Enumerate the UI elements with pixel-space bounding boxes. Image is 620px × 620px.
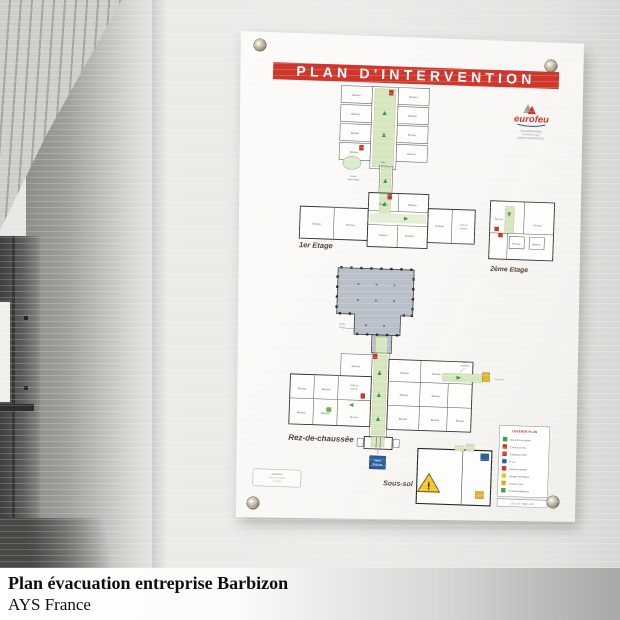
room-label: Bureau xyxy=(298,386,307,390)
column-dot xyxy=(393,300,395,302)
evacuation-corridor xyxy=(455,446,464,451)
access-stage-label: Accès xyxy=(339,323,346,326)
room-label: Bureau xyxy=(405,234,414,238)
photo-scene: PLAN D'INTERVENTION eurofeu Rue Albert R… xyxy=(0,0,620,620)
meeting-room-label: Salle de xyxy=(460,225,469,227)
legend-symbol-icon xyxy=(501,488,506,493)
break-room-label: Salle xyxy=(380,162,386,164)
column-dot xyxy=(376,284,378,286)
evacuation-corridor xyxy=(371,437,384,447)
structure-dot xyxy=(396,334,398,336)
evacuation-panel: PLAN D'INTERVENTION eurofeu Rue Albert R… xyxy=(236,30,584,522)
room-label: Bureau xyxy=(351,112,360,116)
legend-symbol-icon xyxy=(501,481,506,486)
extinguisher-icon xyxy=(373,354,377,359)
structure-dot xyxy=(412,278,414,280)
extinguisher-icon xyxy=(389,90,393,95)
extinguisher-icon xyxy=(388,194,392,199)
basement-label: Sous-sol xyxy=(383,480,414,488)
structure-dot xyxy=(339,312,341,314)
room-label: Bureau xyxy=(407,152,416,156)
door-bar xyxy=(0,404,34,411)
warning-exclamation: ! xyxy=(427,481,431,493)
you-are-here-text: VOUS xyxy=(374,460,381,462)
evacuation-corridor xyxy=(372,89,396,168)
workshop-roof-block: Accès Etage xyxy=(335,267,414,354)
legend-label: Extincteur eau xyxy=(510,446,527,450)
room-label: Bureau xyxy=(532,242,541,246)
column-dot xyxy=(358,283,360,285)
structure-dot xyxy=(336,295,338,297)
structure-dot xyxy=(390,268,392,270)
room-label: Bureau xyxy=(350,150,359,154)
logo-brand: eurofeu xyxy=(514,114,549,126)
column-dot xyxy=(383,325,385,327)
legend-symbol-icon xyxy=(502,466,507,471)
room-label: Bureau xyxy=(534,223,543,227)
room-label: Bureau xyxy=(409,95,418,99)
extinguisher-icon xyxy=(359,145,363,150)
door-window xyxy=(0,300,12,404)
legend-symbol-icon xyxy=(503,444,508,449)
mounting-screw xyxy=(247,497,260,510)
evacuation-corridor xyxy=(375,337,388,353)
floorplan-first-floor: Salle de réunion 1er Etage xyxy=(299,190,476,255)
ria-icon xyxy=(495,227,499,231)
structure-dot xyxy=(335,305,337,307)
extinguisher-icon xyxy=(498,233,502,237)
legend-label: Alarme incendie xyxy=(509,468,528,472)
extinguisher-icon xyxy=(361,393,365,398)
corner-shadow xyxy=(152,0,168,568)
meter-label: Compteur xyxy=(494,378,504,381)
legend-label: Extincteur CO2 xyxy=(510,453,528,457)
structure-dot xyxy=(411,315,413,317)
structure-dot xyxy=(349,312,351,314)
door-hinge xyxy=(24,386,28,390)
you-are-here-text: ÊTES ICI xyxy=(373,463,383,466)
wall-photo: PLAN D'INTERVENTION eurofeu Rue Albert R… xyxy=(0,0,620,568)
caption-subtitle: AYS France xyxy=(8,594,620,615)
structure-dot xyxy=(336,285,338,287)
room-label: Bureau xyxy=(322,387,331,391)
structure-dot xyxy=(403,314,405,316)
room-label: Bureau xyxy=(512,242,521,246)
second-floor-label: 2ème Etage xyxy=(489,266,528,274)
floorplan-second-floor: 2ème Etage xyxy=(488,201,554,275)
room-label: Bureau xyxy=(432,394,441,398)
legend-symbol-icon xyxy=(502,473,507,478)
legend-symbol-icon xyxy=(502,459,507,464)
room-label: Bureau xyxy=(432,372,441,376)
room-label: Bureau xyxy=(456,419,465,423)
meter-icon xyxy=(482,373,489,382)
break-room-label: de pause xyxy=(378,165,388,167)
structure-dot xyxy=(336,275,338,277)
structure-dot xyxy=(400,268,402,270)
access-stage-label: Etage xyxy=(339,326,346,329)
evacuation-corridor xyxy=(442,373,482,382)
structure-dot xyxy=(370,267,372,269)
room-label: Bureau xyxy=(379,233,388,237)
structure-dot xyxy=(376,333,378,335)
ground-floor-label: Rez-de-chaussée xyxy=(288,433,354,444)
mounting-screw xyxy=(254,39,267,52)
evacuation-corridor xyxy=(505,206,515,232)
you-are-here-sign: VOUS ÊTES ICI xyxy=(369,456,385,470)
cartouche-line: N° 7288 xyxy=(273,481,282,483)
first-floor-label: 1er Etage xyxy=(299,240,333,250)
room-label: Bureau xyxy=(297,410,306,414)
structure-dot xyxy=(340,266,342,268)
structure-dot xyxy=(386,334,388,336)
room-label: Bureau xyxy=(350,415,359,419)
legend-symbol-icon xyxy=(502,451,507,456)
room-label: Bureau xyxy=(408,114,417,118)
logo-address-3: 28250 SENONCHES xyxy=(518,136,545,141)
meeting-room-label: réunion xyxy=(350,387,358,390)
cartouche: EUROFEU Plan d'intervention N° 7288 xyxy=(253,469,302,488)
ria-icon xyxy=(481,454,489,461)
room-label: Bureau xyxy=(431,418,440,422)
floorplan-ground-floor: Compteur Accès chaufferie Salle de réuni… xyxy=(288,350,505,459)
boiler-access-label: chaufferie xyxy=(460,364,470,367)
legend-label: Coupure gaz xyxy=(509,483,524,487)
cartouche-line: EUROFEU xyxy=(272,474,283,476)
room-label: Bureau xyxy=(313,222,322,226)
floor-shadow xyxy=(0,518,142,568)
room-label: Bureau xyxy=(399,417,408,421)
eurofeu-logo: eurofeu Rue Albert Rémy ZA de la Loge 28… xyxy=(513,104,549,141)
structure-dot xyxy=(360,267,362,269)
structure-dot xyxy=(380,267,382,269)
structure-dot xyxy=(366,333,368,335)
access-2e-label: Accès xyxy=(350,175,357,178)
caption-title: Plan évacuation entreprise Barbizon xyxy=(8,572,620,594)
meeting-room-label: réunion xyxy=(460,227,468,230)
structure-dot xyxy=(350,266,352,268)
legend-box: LEGENDE PLAN Sens d'évacuationExtincteur… xyxy=(497,425,550,508)
floorplan-top-wing: Salle de pause Accès 2ème Etage xyxy=(338,85,430,196)
floorplan-basement: ! Sous-sol xyxy=(383,441,493,506)
meeting-room-label: Salle de xyxy=(350,385,359,387)
hazard-icon xyxy=(475,491,483,498)
panel-plexiglass: PLAN D'INTERVENTION eurofeu Rue Albert R… xyxy=(236,30,584,522)
structure-dot xyxy=(412,298,414,300)
structure-dot xyxy=(411,308,413,310)
column-dot xyxy=(394,284,396,286)
structure-dot xyxy=(356,333,358,335)
room-label: Bureau xyxy=(495,217,504,221)
mounting-screw xyxy=(545,60,558,73)
room-label: Bureau xyxy=(436,224,445,228)
room-label: Bureau xyxy=(346,223,355,227)
room-label: Bureau xyxy=(321,411,330,415)
room-label: Bureau xyxy=(400,371,409,375)
structure-dot xyxy=(410,269,412,271)
room-label: Bureau xyxy=(408,203,417,207)
legend-symbol-icon xyxy=(503,437,508,442)
column-dot xyxy=(365,324,367,326)
structure-dot xyxy=(412,288,414,290)
room-label: Bureau xyxy=(400,393,409,397)
intervention-plan-drawing: PLAN D'INTERVENTION eurofeu Rue Albert R… xyxy=(236,30,584,522)
mounting-screw xyxy=(547,496,560,509)
room-label: Bureau xyxy=(352,364,361,368)
door-hinge xyxy=(24,316,28,320)
access-2e-label: 2ème Etage xyxy=(347,178,360,181)
evacuation-corridor xyxy=(466,444,474,451)
column-dot xyxy=(357,299,359,301)
boiler-access-label: Accès xyxy=(462,361,469,364)
room-label: Bureau xyxy=(352,93,361,97)
column-dot xyxy=(375,300,377,302)
room-label: Bureau xyxy=(408,133,417,137)
printed-plan: PLAN D'INTERVENTION eurofeu Rue Albert R… xyxy=(252,62,562,508)
room-label: Bureau xyxy=(351,131,360,135)
legend-label: R.I.A. xyxy=(510,461,517,464)
caption-bar: Plan évacuation entreprise Barbizon AYS … xyxy=(0,568,620,620)
